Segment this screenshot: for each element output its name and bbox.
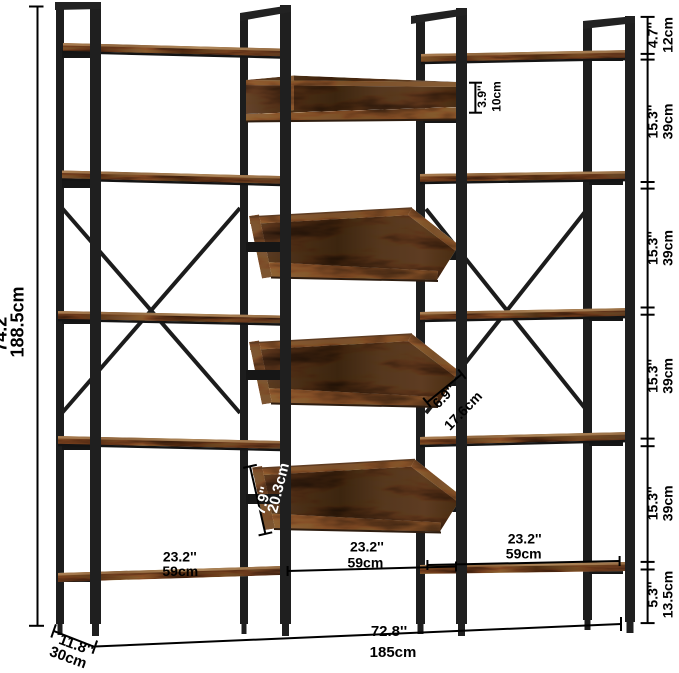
svg-text:59cm: 59cm xyxy=(347,555,383,571)
svg-text:5.3'': 5.3'' xyxy=(645,581,661,607)
svg-text:13.5cm: 13.5cm xyxy=(660,571,676,618)
svg-text:59cm: 59cm xyxy=(506,546,542,562)
svg-text:39cm: 39cm xyxy=(660,104,676,140)
svg-text:10cm: 10cm xyxy=(490,81,504,112)
svg-text:23.2'': 23.2'' xyxy=(508,531,542,547)
svg-text:15.3'': 15.3'' xyxy=(645,231,661,265)
svg-text:3.9'': 3.9'' xyxy=(475,85,489,108)
svg-text:39cm: 39cm xyxy=(660,485,676,521)
svg-text:72.8'': 72.8'' xyxy=(371,623,407,640)
svg-text:12cm: 12cm xyxy=(660,17,676,53)
svg-text:39cm: 39cm xyxy=(660,230,676,266)
svg-text:15.3'': 15.3'' xyxy=(645,486,661,520)
svg-text:59cm: 59cm xyxy=(162,563,198,579)
svg-text:39cm: 39cm xyxy=(660,358,676,394)
svg-text:4.7'': 4.7'' xyxy=(645,22,661,48)
svg-text:15.3'': 15.3'' xyxy=(645,359,661,393)
svg-text:188.5cm: 188.5cm xyxy=(8,286,28,357)
svg-text:23.2'': 23.2'' xyxy=(350,539,384,555)
svg-text:185cm: 185cm xyxy=(370,644,417,661)
svg-text:15.3'': 15.3'' xyxy=(645,105,661,139)
